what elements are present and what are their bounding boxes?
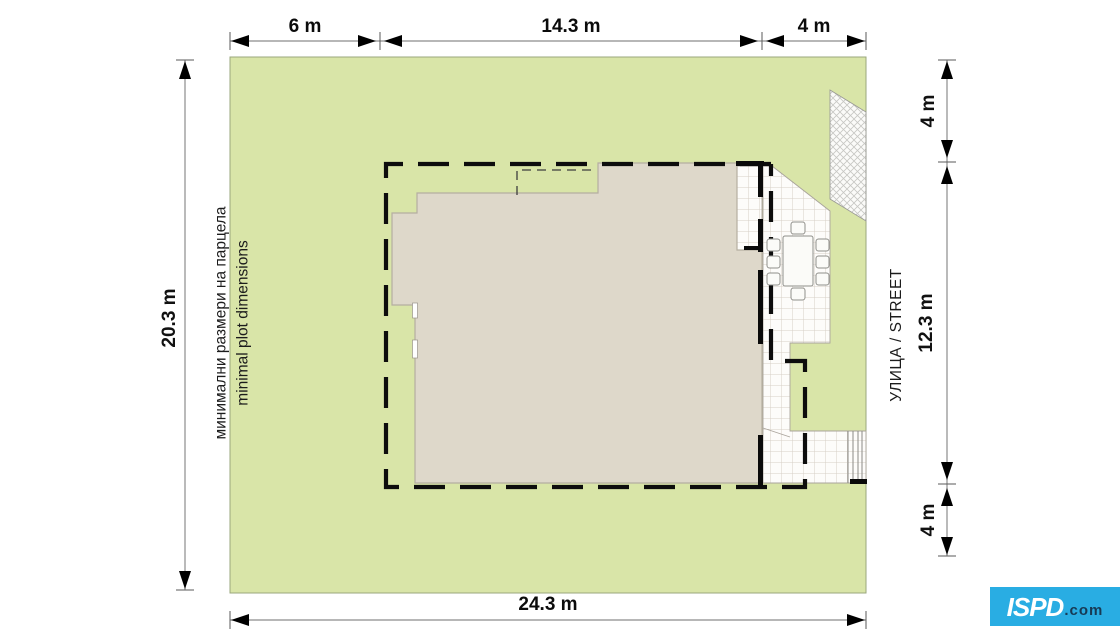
dim-label-bottom-total: 24.3 m: [230, 594, 866, 616]
plot-caption: минимални размери на парцела minimal plo…: [211, 206, 256, 439]
dim-label-left-total: 20.3 m: [159, 288, 181, 347]
dim-label-right-middle: 12.3 m: [916, 293, 938, 352]
dim-label-top-middle: 14.3 m: [380, 16, 762, 38]
dim-label-top-right: 4 m: [762, 16, 866, 38]
chair: [767, 239, 780, 251]
chair: [767, 256, 780, 268]
site-plan-page: 6 m 14.3 m 4 m 24.3 m 20.3 m 4 m 12.3 m …: [0, 0, 1120, 632]
chair: [816, 256, 829, 268]
logo-badge[interactable]: ISPD .com: [990, 587, 1120, 626]
chair: [791, 222, 805, 234]
chair: [767, 273, 780, 285]
logo-suffix-text: .com: [1064, 602, 1103, 619]
chair: [816, 239, 829, 251]
chair: [816, 273, 829, 285]
logo-brand-text: ISPD: [1007, 594, 1064, 620]
dim-label-right-top: 4 m: [918, 95, 940, 128]
table: [783, 236, 813, 286]
house-footprint: [392, 163, 762, 483]
driveway-hatch: [830, 90, 866, 221]
chair: [791, 288, 805, 300]
dim-label-top-left: 6 m: [230, 16, 380, 38]
dim-label-right-bottom: 4 m: [918, 504, 940, 537]
street-label: УЛИЦА / STREET: [888, 268, 906, 402]
plot-caption-english: minimal plot dimensions: [233, 206, 255, 439]
plot-caption-bulgarian: минимални размери на парцела: [211, 206, 233, 439]
